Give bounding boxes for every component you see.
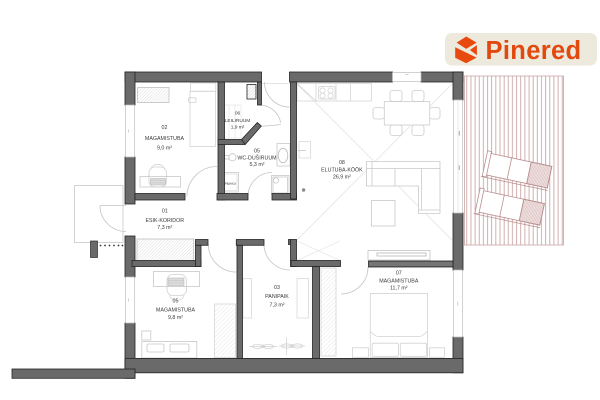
svg-text:1,9 m²: 1,9 m² (231, 125, 245, 131)
svg-text:08: 08 (339, 160, 345, 166)
svg-text:MAGAMISTUBA: MAGAMISTUBA (156, 307, 196, 313)
svg-text:PM+KV: PM+KV (225, 182, 237, 186)
svg-text:03: 03 (274, 285, 280, 291)
svg-text:05: 05 (173, 299, 179, 305)
svg-text:06: 06 (235, 111, 241, 117)
svg-text:9,8 m²: 9,8 m² (168, 315, 183, 321)
svg-text:26,9 m²: 26,9 m² (333, 175, 351, 181)
svg-text:MAGAMISTUBA: MAGAMISTUBA (145, 136, 185, 142)
svg-text:01: 01 (162, 209, 168, 215)
svg-text:Pinered: Pinered (486, 37, 582, 65)
svg-text:MAGAMISTUBA: MAGAMISTUBA (379, 278, 419, 284)
svg-text:07: 07 (396, 271, 402, 277)
svg-text:11,7 m²: 11,7 m² (390, 286, 408, 292)
svg-text:WC-DUŠIRUUM: WC-DUŠIRUUM (237, 154, 276, 161)
svg-text:7,3 m²: 7,3 m² (269, 303, 284, 309)
svg-text:PANIPAIK: PANIPAIK (265, 294, 289, 300)
svg-text:LEILIRUUM: LEILIRUUM (225, 118, 251, 124)
svg-text:9,0 m²: 9,0 m² (157, 146, 172, 152)
svg-text:ESIK-KORIDOR: ESIK-KORIDOR (146, 218, 185, 224)
svg-text:05: 05 (254, 149, 260, 155)
svg-text:02: 02 (162, 125, 168, 131)
svg-text:7,3 m²: 7,3 m² (157, 225, 172, 231)
svg-text:ELUTUBA-KÖÖK: ELUTUBA-KÖÖK (321, 166, 363, 173)
svg-text:5,3 m²: 5,3 m² (249, 162, 264, 168)
